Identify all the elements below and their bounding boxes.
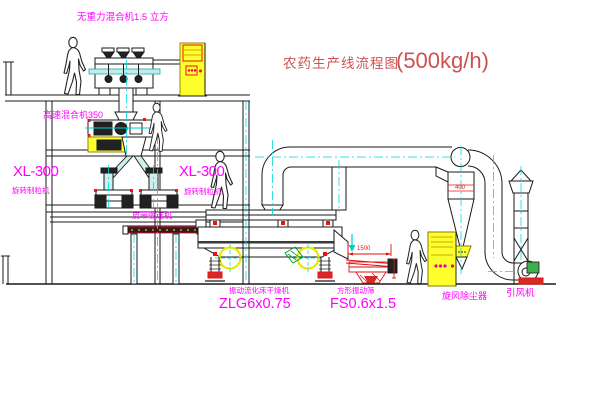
- process-flow-diagram: 农药生产线流程图 (500kg/h) 无重力混合机1.5 立方 高速混合机350…: [0, 0, 600, 403]
- label-high-speed-mixer: 高速混合机350: [43, 111, 103, 120]
- label-sieve-name: 方形振动筛: [337, 287, 375, 295]
- control-cabinet-figure: [428, 232, 456, 286]
- label-belt-conveyor: 皮带输送机: [132, 212, 172, 220]
- granulator-left-figure: [94, 168, 133, 208]
- dimension-cyclone-band: 400: [455, 185, 465, 191]
- granulator-right-figure: [139, 168, 178, 208]
- label-granulator-right-model: XL-300: [179, 164, 224, 179]
- person-figure: [407, 230, 427, 283]
- diagram-title: 农药生产线流程图: [283, 57, 399, 71]
- person-figure: [149, 103, 167, 151]
- label-cyclone: 旋风除尘器: [442, 292, 487, 301]
- label-gravity-mixer: 无重力混合机1.5 立方: [77, 13, 169, 23]
- label-granulator-left-model: XL-300: [13, 164, 58, 179]
- gravity-mixer-figure: [89, 48, 181, 115]
- induced-fan-figure: [518, 261, 543, 284]
- bucket-elevator-top: [178, 43, 207, 96]
- belt-conveyor-figure: [123, 226, 202, 284]
- square-sieve-figure: [346, 234, 397, 283]
- label-granulator-right-name: 旋转制粒机: [184, 188, 222, 196]
- dimension-sieve-length: 1500: [357, 246, 370, 252]
- diagram-title-capacity: (500kg/h): [396, 50, 489, 72]
- label-dryer-name: 振动流化床干燥机: [229, 287, 289, 295]
- person-figure: [64, 37, 86, 94]
- label-sieve-model: FS0.6x1.5: [330, 297, 396, 312]
- label-induced-fan: 引风机: [506, 289, 535, 299]
- fluid-bed-dryer-figure: [196, 210, 348, 281]
- label-dryer-model: ZLG6x0.75: [219, 297, 291, 312]
- label-granulator-left-name: 旋转制粒机: [12, 187, 50, 195]
